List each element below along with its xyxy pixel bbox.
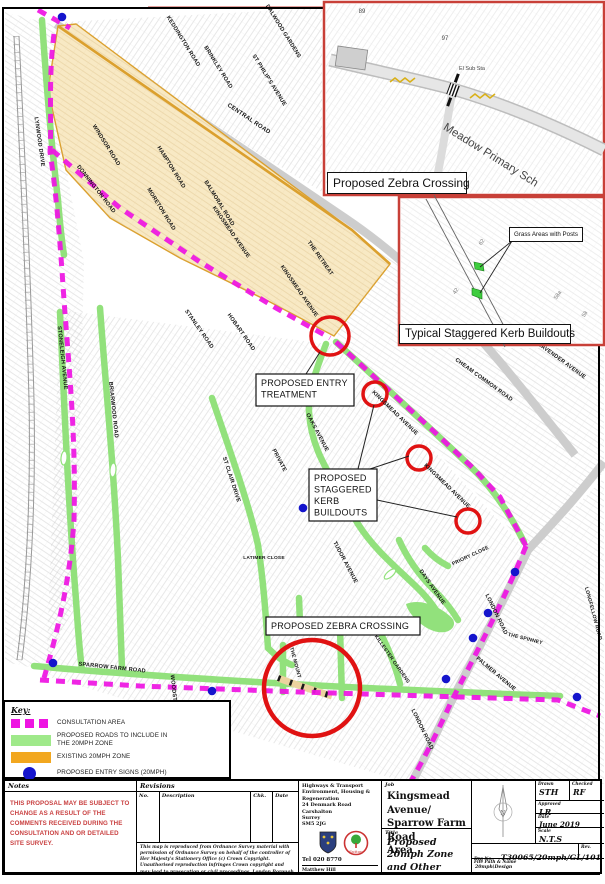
field-file-path: File Path & Name 20mph\Design (472, 858, 604, 872)
inset-zebra-caption: Proposed Zebra Crossing (327, 172, 467, 194)
notes-panel: Notes THIS PROPOSAL MAY BE SUBJECT TO CH… (5, 781, 137, 872)
legend-label: PROPOSED ENTRY SIGNS (20MPH) (57, 769, 175, 778)
inset-map-label: 97 (442, 36, 449, 42)
legend-label: CONSULTATION AREA (57, 719, 175, 728)
sutton-logo-icon: Sutton (343, 830, 369, 856)
street-label: LATIMER CLOSE (243, 555, 285, 561)
job-title-panel: Job Kingsmead Avenue/ Sparrow Farm Road … (382, 781, 472, 872)
entry-sign-dot (208, 687, 217, 696)
north-arrow: N (472, 781, 536, 843)
logos: Sutton (318, 830, 378, 856)
revisions-header: Revisions (137, 781, 298, 792)
entry-sign-dot (469, 634, 478, 643)
revisions-table: No.DescriptionChk.Date (137, 792, 298, 842)
drawing-sheet: PROPOSED ENTRYTREATMENTPROPOSEDSTAGGERED… (0, 0, 605, 884)
revision-column: No. (137, 792, 159, 842)
officer-block: Matthew HillAssistant Director of Highwa… (302, 865, 378, 872)
field-date: Date June 2019 (536, 814, 604, 828)
notes-header: Notes (5, 781, 136, 792)
annotation-text: PROPOSED (314, 473, 367, 483)
inset-map-label: El Sub Sta (459, 66, 486, 72)
annotation-text: PROPOSED ZEBRA CROSSING (271, 621, 409, 631)
legend-swatch-signs (11, 767, 57, 780)
legend-item: PROPOSED ENTRY SIGNS (20MPH) (11, 767, 223, 780)
annotation-text: TREATMENT (261, 390, 317, 400)
entry-sign-dot (49, 659, 58, 668)
field-checked: Checked RF (570, 781, 604, 800)
office-address-line: SM5 2JG (302, 821, 378, 827)
kingston-logo-icon (318, 831, 338, 855)
revision-column: Description (159, 792, 250, 842)
copyright-text: This map is reproduced from Ordnance Sur… (137, 842, 298, 872)
office-address-line: Environment, Housing & Regeneration (302, 789, 378, 802)
fields-column: Drawn STH Checked RF Approved LR Date Ju… (536, 781, 604, 843)
title-text: Proposed 20mph Zone and Other Measures (… (382, 836, 471, 872)
entry-sign-dot (511, 568, 520, 577)
inset-map-label: 89 (359, 9, 366, 15)
revision-column: Chk. (250, 792, 272, 842)
entry-sign-dot (573, 693, 582, 702)
entry-sign-dot (58, 13, 67, 22)
field-rev: Rev. (578, 843, 604, 858)
title-block: Notes THIS PROPOSAL MAY BE SUBJECT TO CH… (3, 779, 602, 874)
map-key: Key: CONSULTATION AREAPROPOSED ROADS TO … (3, 700, 231, 779)
legend-item: CONSULTATION AREA (11, 719, 223, 728)
grass-areas-callout: Grass Areas with Posts (509, 227, 583, 242)
legend-swatch-consultation (11, 719, 57, 728)
field-approved: Approved LR (536, 801, 604, 814)
entry-sign-dot (442, 675, 451, 684)
north-label: N (500, 810, 505, 817)
annotation-text: PROPOSED ENTRY (261, 378, 348, 388)
officer-line: Matthew Hill (302, 868, 378, 872)
field-scale: Scale N.T.S (536, 828, 604, 843)
inset-kerb-caption: Typical Staggered Kerb Buildouts (399, 324, 571, 344)
revision-column: Date (272, 792, 298, 842)
inset-building (335, 46, 367, 70)
legend-title: Key: (11, 705, 223, 715)
annotation-text: BUILDOUTS (314, 508, 367, 518)
revisions-panel: Revisions No.DescriptionChk.Date This ma… (137, 781, 299, 872)
office-panel: Highways & TransportEnvironment, Housing… (299, 781, 382, 872)
legend-swatch-zone (11, 752, 57, 763)
annotation-text: STAGGERED (314, 485, 372, 495)
office-address: Highways & TransportEnvironment, Housing… (302, 783, 378, 828)
field-drawn: Drawn STH (536, 781, 570, 800)
annotation-text: KERB (314, 496, 339, 506)
legend-label: EXISTING 20MPH ZONE (57, 753, 175, 762)
notes-text: THIS PROPOSAL MAY BE SUBJECT TO CHANGE A… (10, 799, 131, 849)
legend-label: PROPOSED ROADS TO INCLUDE IN THE 20MPH Z… (57, 732, 175, 749)
office-tel: Tel 020 8770 (302, 857, 378, 863)
legend-item: PROPOSED ROADS TO INCLUDE IN THE 20MPH Z… (11, 732, 223, 749)
job-header: Job (382, 781, 397, 789)
proposed-road (340, 628, 342, 698)
approval-panel: N Drawn STH Checked RF Approved LR (472, 781, 604, 872)
legend-items: CONSULTATION AREAPROPOSED ROADS TO INCLU… (11, 719, 223, 780)
sutton-logo-label: Sutton (349, 849, 363, 854)
entry-sign-dot (299, 504, 308, 513)
legend-swatch-roads (11, 735, 57, 746)
legend-item: EXISTING 20MPH ZONE (11, 752, 223, 763)
